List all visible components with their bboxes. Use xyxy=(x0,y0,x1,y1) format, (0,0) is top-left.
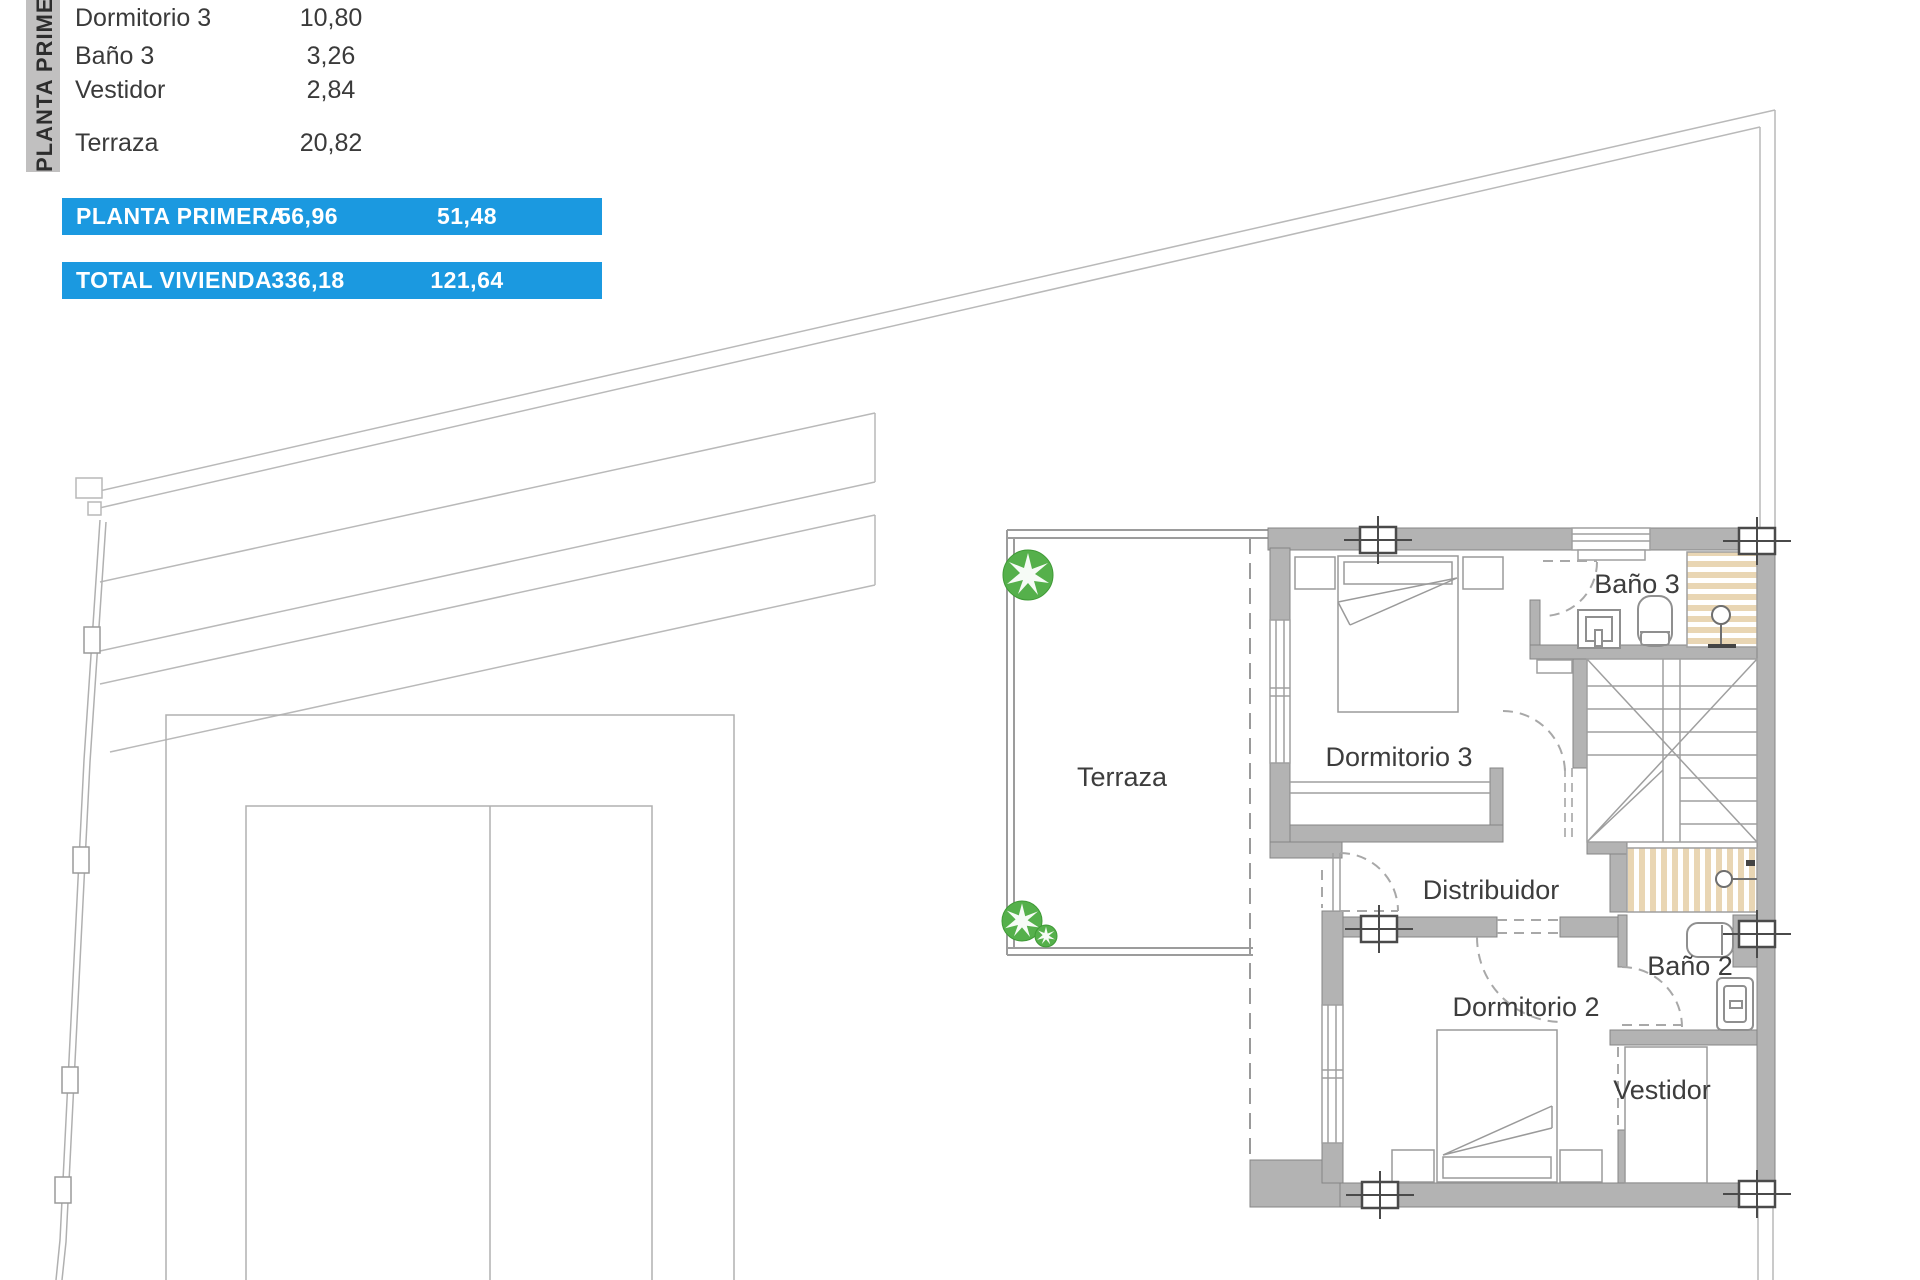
staircase xyxy=(1565,659,1757,842)
tree-icon xyxy=(1003,550,1053,600)
toilet-icon xyxy=(1638,596,1672,646)
room-label-bano2: Baño 2 xyxy=(1647,951,1733,981)
room-label-vestidor: Vestidor xyxy=(1613,1075,1711,1105)
room-label-distribuidor: Distribuidor xyxy=(1423,875,1560,905)
bed xyxy=(1338,556,1458,712)
wardrobe xyxy=(1625,1047,1707,1183)
sink-icon xyxy=(1578,610,1620,648)
driveway-outline xyxy=(166,715,734,1280)
bed xyxy=(1437,1030,1557,1182)
room-label-bano3: Baño 3 xyxy=(1594,569,1680,599)
room-label-terraza: Terraza xyxy=(1077,762,1168,792)
nightstand xyxy=(1295,557,1335,589)
room-label-dormitorio2: Dormitorio 2 xyxy=(1452,992,1599,1022)
tree-icon xyxy=(1002,901,1057,947)
nightstand xyxy=(1463,557,1503,589)
floor-plan-svg: Terraza Dormitorio 3 Baño 3 Distribuidor… xyxy=(0,0,1920,1280)
nightstand xyxy=(1560,1150,1602,1182)
terrace-outline xyxy=(1007,530,1268,955)
sink-icon xyxy=(1717,978,1753,1030)
plot-fence xyxy=(55,520,106,1280)
floor-plan-page: PLANTA PRIMERA Dormitorio 3 10,80 Baño 3… xyxy=(0,0,1920,1280)
nightstand xyxy=(1392,1150,1434,1182)
room-label-dormitorio3: Dormitorio 3 xyxy=(1325,742,1472,772)
